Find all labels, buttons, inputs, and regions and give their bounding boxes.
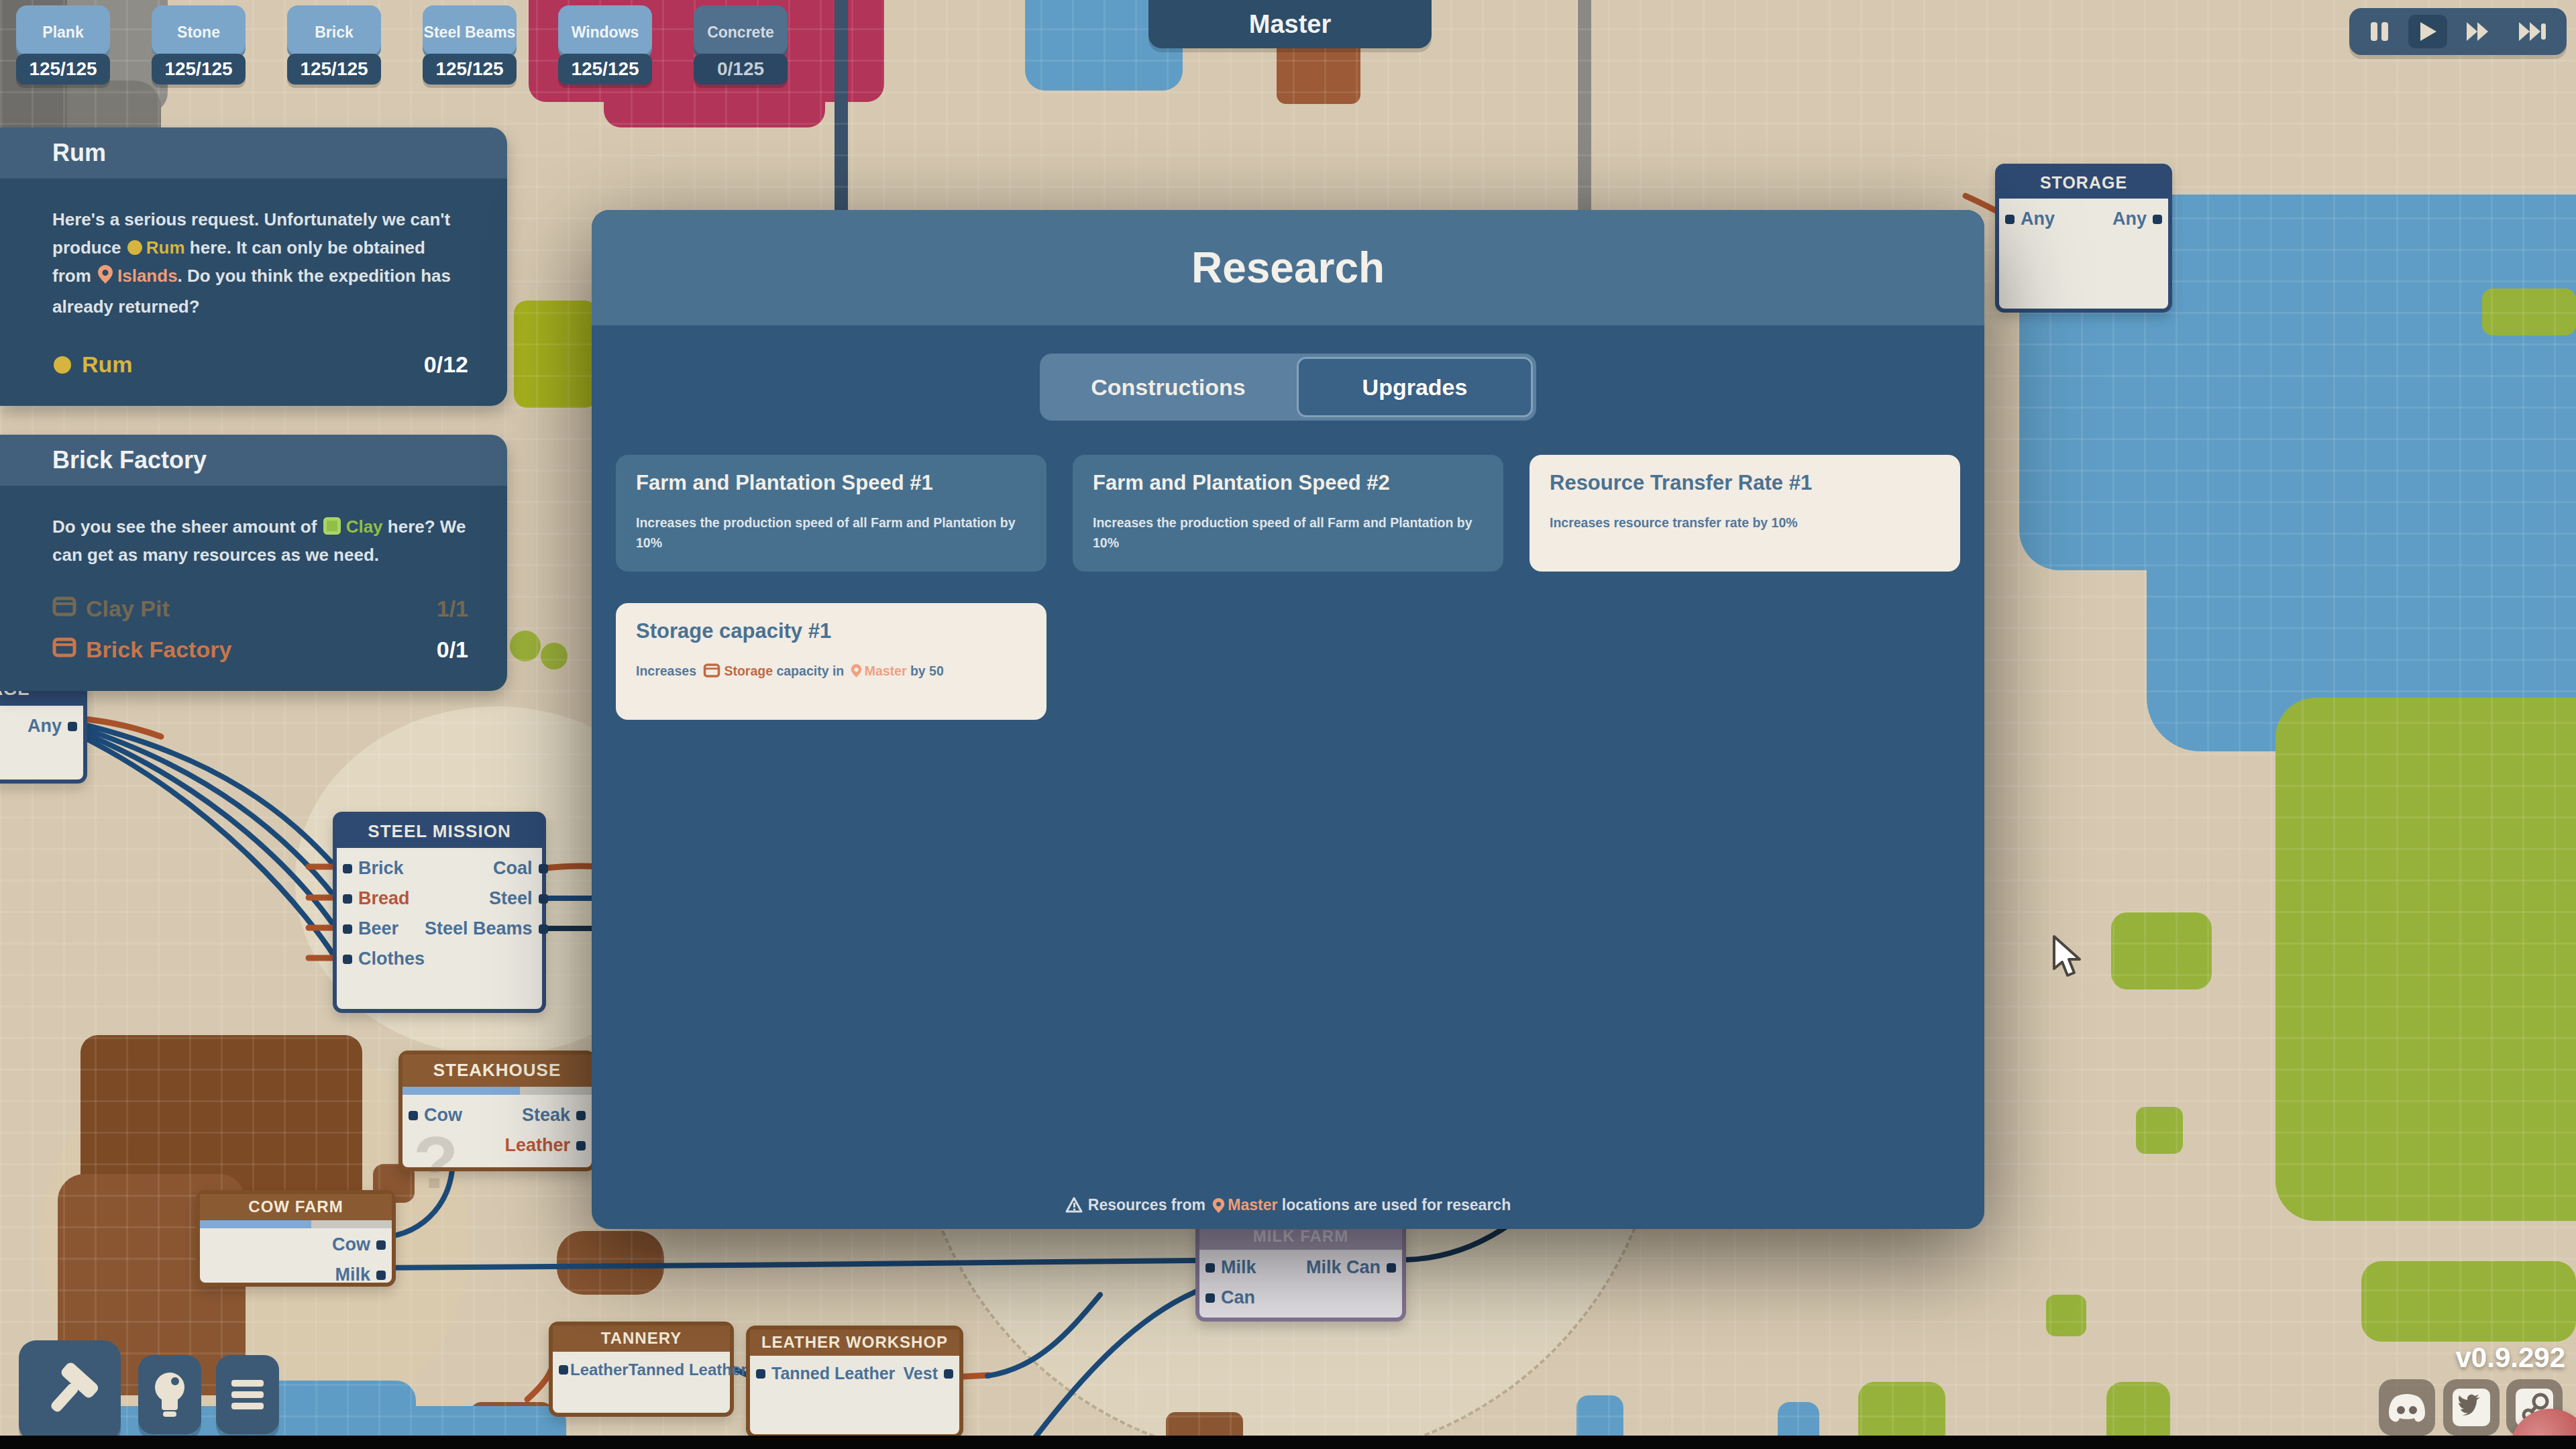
objective-brick-factory: Brick Factory 0/1 <box>52 637 468 663</box>
port-in-cow[interactable]: Cow <box>402 1100 462 1130</box>
node-title: STEEL MISSION <box>337 816 542 848</box>
counter-concrete[interactable]: Concrete 0/125 <box>694 5 788 85</box>
card-description: Increases resource transfer rate by 10% <box>1550 513 1940 533</box>
question-watermark: ? <box>413 1120 458 1205</box>
quest-panel-brick-factory[interactable]: Brick Factory Do you see the sheer amoun… <box>0 435 507 691</box>
resource-name: Brick <box>287 5 381 59</box>
node-storage[interactable]: STORAGE Any Any <box>1995 164 2172 313</box>
twitter-button[interactable] <box>2443 1379 2500 1436</box>
letterbox-bar <box>0 1436 2576 1449</box>
map-pin-icon <box>97 264 113 292</box>
build-button[interactable] <box>19 1340 121 1442</box>
pause-icon <box>2368 20 2391 43</box>
port-out-any[interactable]: Any <box>28 711 83 741</box>
research-card-grid: Farm and Plantation Speed #1 Increases t… <box>616 455 1960 720</box>
map-pin-icon <box>1210 1196 1228 1214</box>
master-location-label: Master <box>865 663 907 678</box>
research-tabs: Constructions Upgrades <box>1040 354 1536 421</box>
node-cow-farm[interactable]: COW FARM Cow Milk <box>196 1190 396 1287</box>
port-in-leather[interactable]: Leather <box>553 1354 629 1385</box>
objective-name: Clay Pit <box>86 596 170 622</box>
storage-building-icon <box>700 663 724 678</box>
quest-description: Here's a serious request. Unfortunately … <box>52 205 468 321</box>
port-out-steel[interactable]: Steel <box>425 883 554 914</box>
map-pin-icon <box>848 663 865 678</box>
node-leather-workshop[interactable]: LEATHER WORKSHOP Tanned Leather Vest <box>746 1326 963 1438</box>
twitter-icon <box>2452 1388 2491 1427</box>
port-in-tanned-leather[interactable]: Tanned Leather <box>750 1358 895 1389</box>
playback-controls <box>2349 8 2567 55</box>
card-description: Increases the production speed of all Fa… <box>636 513 1026 553</box>
production-progress <box>402 1087 592 1095</box>
footer-text: Resources from <box>1088 1196 1210 1214</box>
port-in-brick[interactable]: Brick <box>337 853 425 883</box>
counter-steel-beams[interactable]: Steel Beams 125/125 <box>423 5 517 85</box>
play-icon <box>2416 20 2439 43</box>
counter-stone[interactable]: Stone 125/125 <box>152 5 246 85</box>
resource-value: 125/125 <box>423 54 517 85</box>
node-steel-mission[interactable]: STEEL MISSION Brick Bread Beer Clothes C… <box>333 812 546 1013</box>
menu-icon <box>229 1377 266 1412</box>
storage-label: Storage <box>724 663 773 678</box>
node-milk-farm[interactable]: MILK FARM Milk Can Milk Can <box>1195 1220 1406 1322</box>
discord-icon <box>2387 1393 2426 1422</box>
resource-name: Plank <box>16 5 110 59</box>
quest-title: Rum <box>0 127 507 178</box>
tab-upgrades[interactable]: Upgrades <box>1297 357 1533 417</box>
research-card-transfer-rate-1[interactable]: Resource Transfer Rate #1 Increases reso… <box>1529 455 1960 572</box>
counter-windows[interactable]: Windows 125/125 <box>558 5 652 85</box>
location-tab-master[interactable]: Master <box>1148 0 1432 48</box>
resource-value: 125/125 <box>152 54 246 85</box>
port-out-steel-beams[interactable]: Steel Beams <box>425 914 554 944</box>
mouse-cursor <box>2051 934 2086 981</box>
modal-title: Research <box>1191 243 1385 292</box>
warning-icon <box>1065 1196 1088 1214</box>
research-card-farm-speed-1[interactable]: Farm and Plantation Speed #1 Increases t… <box>616 455 1046 572</box>
card-title: Farm and Plantation Speed #2 <box>1093 471 1483 495</box>
game-screen: STORAGE Any STEEL MISSION Brick Bread Be… <box>0 0 2576 1449</box>
discord-button[interactable] <box>2379 1379 2435 1436</box>
port-out-cow[interactable]: Cow <box>332 1230 392 1260</box>
objective-progress: 1/1 <box>437 596 468 622</box>
resource-value: 125/125 <box>16 54 110 85</box>
quest-description: Do you see the sheer amount of Clay here… <box>52 513 468 569</box>
rum-resource-icon <box>127 240 142 255</box>
quest-text: Do you see the sheer amount of <box>52 517 322 537</box>
pause-button[interactable] <box>2360 15 2399 48</box>
card-text: capacity in <box>773 663 848 678</box>
resource-value: 125/125 <box>558 54 652 85</box>
clay-resource-icon <box>323 517 341 535</box>
fast-forward-icon <box>2465 20 2491 43</box>
card-title: Resource Transfer Rate #1 <box>1550 471 1940 495</box>
objective-name: Brick Factory <box>86 637 231 663</box>
max-forward-button[interactable] <box>2509 15 2556 48</box>
production-progress <box>200 1220 392 1228</box>
port-in-clothes[interactable]: Clothes <box>337 944 425 974</box>
card-title: Farm and Plantation Speed #1 <box>636 471 1026 495</box>
max-forward-icon <box>2517 20 2548 43</box>
port-in-bread[interactable]: Bread <box>337 883 425 914</box>
objective-progress: 0/1 <box>437 637 468 663</box>
card-description: Increases the production speed of all Fa… <box>1093 513 1483 553</box>
resource-name: Windows <box>558 5 652 59</box>
footer-text: locations are used for research <box>1277 1196 1511 1214</box>
card-text: Increases <box>636 663 700 678</box>
resource-name: Stone <box>152 5 246 59</box>
reward-name: Rum <box>82 352 133 378</box>
port-out-vest[interactable]: Vest <box>904 1358 959 1389</box>
node-title: COW FARM <box>200 1194 392 1220</box>
reward-progress: 0/12 <box>424 352 468 378</box>
tab-constructions[interactable]: Constructions <box>1040 354 1297 421</box>
node-title: TANNERY <box>553 1326 730 1352</box>
quest-reward-row: Rum 0/12 <box>52 352 468 378</box>
resource-value: 0/125 <box>694 54 788 85</box>
version-label: v0.9.292 <box>2456 1342 2566 1374</box>
objective-clay-pit: Clay Pit 1/1 <box>52 596 468 622</box>
resource-value: 125/125 <box>287 54 381 85</box>
card-text: by 50 <box>907 663 944 678</box>
node-title: LEATHER WORKSHOP <box>750 1330 959 1356</box>
counter-plank[interactable]: Plank 125/125 <box>16 5 110 85</box>
rum-resource-label: Rum <box>146 237 185 258</box>
hammer-icon <box>36 1358 103 1425</box>
port-in-beer[interactable]: Beer <box>337 914 425 944</box>
building-icon <box>52 596 76 622</box>
clay-resource-label: Clay <box>346 517 383 537</box>
node-steakhouse[interactable]: STEAKHOUSE ? Cow Steak Leather <box>398 1051 596 1171</box>
research-card-farm-speed-2[interactable]: Farm and Plantation Speed #2 Increases t… <box>1073 455 1503 572</box>
resource-counter-bar: Plank 125/125 Stone 125/125 Brick 125/12… <box>16 5 788 85</box>
node-title: STEAKHOUSE <box>402 1055 592 1087</box>
port-out-tanned-leather[interactable]: Tanned Leather <box>629 1354 765 1385</box>
research-button[interactable] <box>138 1355 201 1434</box>
research-footer-note: Resources from Master locations are used… <box>592 1196 1984 1214</box>
card-description: Increases Storage capacity in Master by … <box>636 661 1026 681</box>
lightbulb-icon <box>151 1370 189 1419</box>
rum-resource-icon <box>54 356 71 374</box>
play-button[interactable] <box>2408 15 2447 48</box>
port-in-can[interactable]: Can <box>1199 1283 1256 1313</box>
fast-forward-button[interactable] <box>2457 15 2500 48</box>
port-out-any[interactable]: Any <box>2112 204 2168 234</box>
resource-name: Steel Beams <box>423 5 517 59</box>
port-out-steak[interactable]: Steak <box>504 1100 592 1130</box>
node-tannery[interactable]: TANNERY Leather Tanned Leather <box>549 1322 734 1417</box>
port-out-leather[interactable]: Leather <box>504 1130 592 1161</box>
research-card-storage-capacity-1[interactable]: Storage capacity #1 Increases Storage ca… <box>616 603 1046 720</box>
research-modal: Research Constructions Upgrades Farm and… <box>592 210 1984 1229</box>
modal-header: Research <box>592 210 1984 325</box>
port-in-any[interactable]: Any <box>1999 204 2055 234</box>
port-out-milk-can[interactable]: Milk Can <box>1306 1252 1402 1283</box>
quest-title: Brick Factory <box>0 435 507 486</box>
port-out-milk[interactable]: Milk <box>332 1260 392 1290</box>
building-icon <box>52 637 76 663</box>
islands-location-label: Islands <box>117 266 178 286</box>
port-out-coal[interactable]: Coal <box>425 853 554 883</box>
menu-button[interactable] <box>216 1355 279 1434</box>
node-title: STORAGE <box>1999 168 2168 199</box>
counter-brick[interactable]: Brick 125/125 <box>287 5 381 85</box>
master-location-label: Master <box>1228 1196 1277 1214</box>
card-title: Storage capacity #1 <box>636 619 1026 643</box>
location-label: Master <box>1249 10 1332 39</box>
quest-panel-rum[interactable]: Rum Here's a serious request. Unfortunat… <box>0 127 507 406</box>
resource-name: Concrete <box>694 5 788 59</box>
port-in-milk[interactable]: Milk <box>1199 1252 1256 1283</box>
